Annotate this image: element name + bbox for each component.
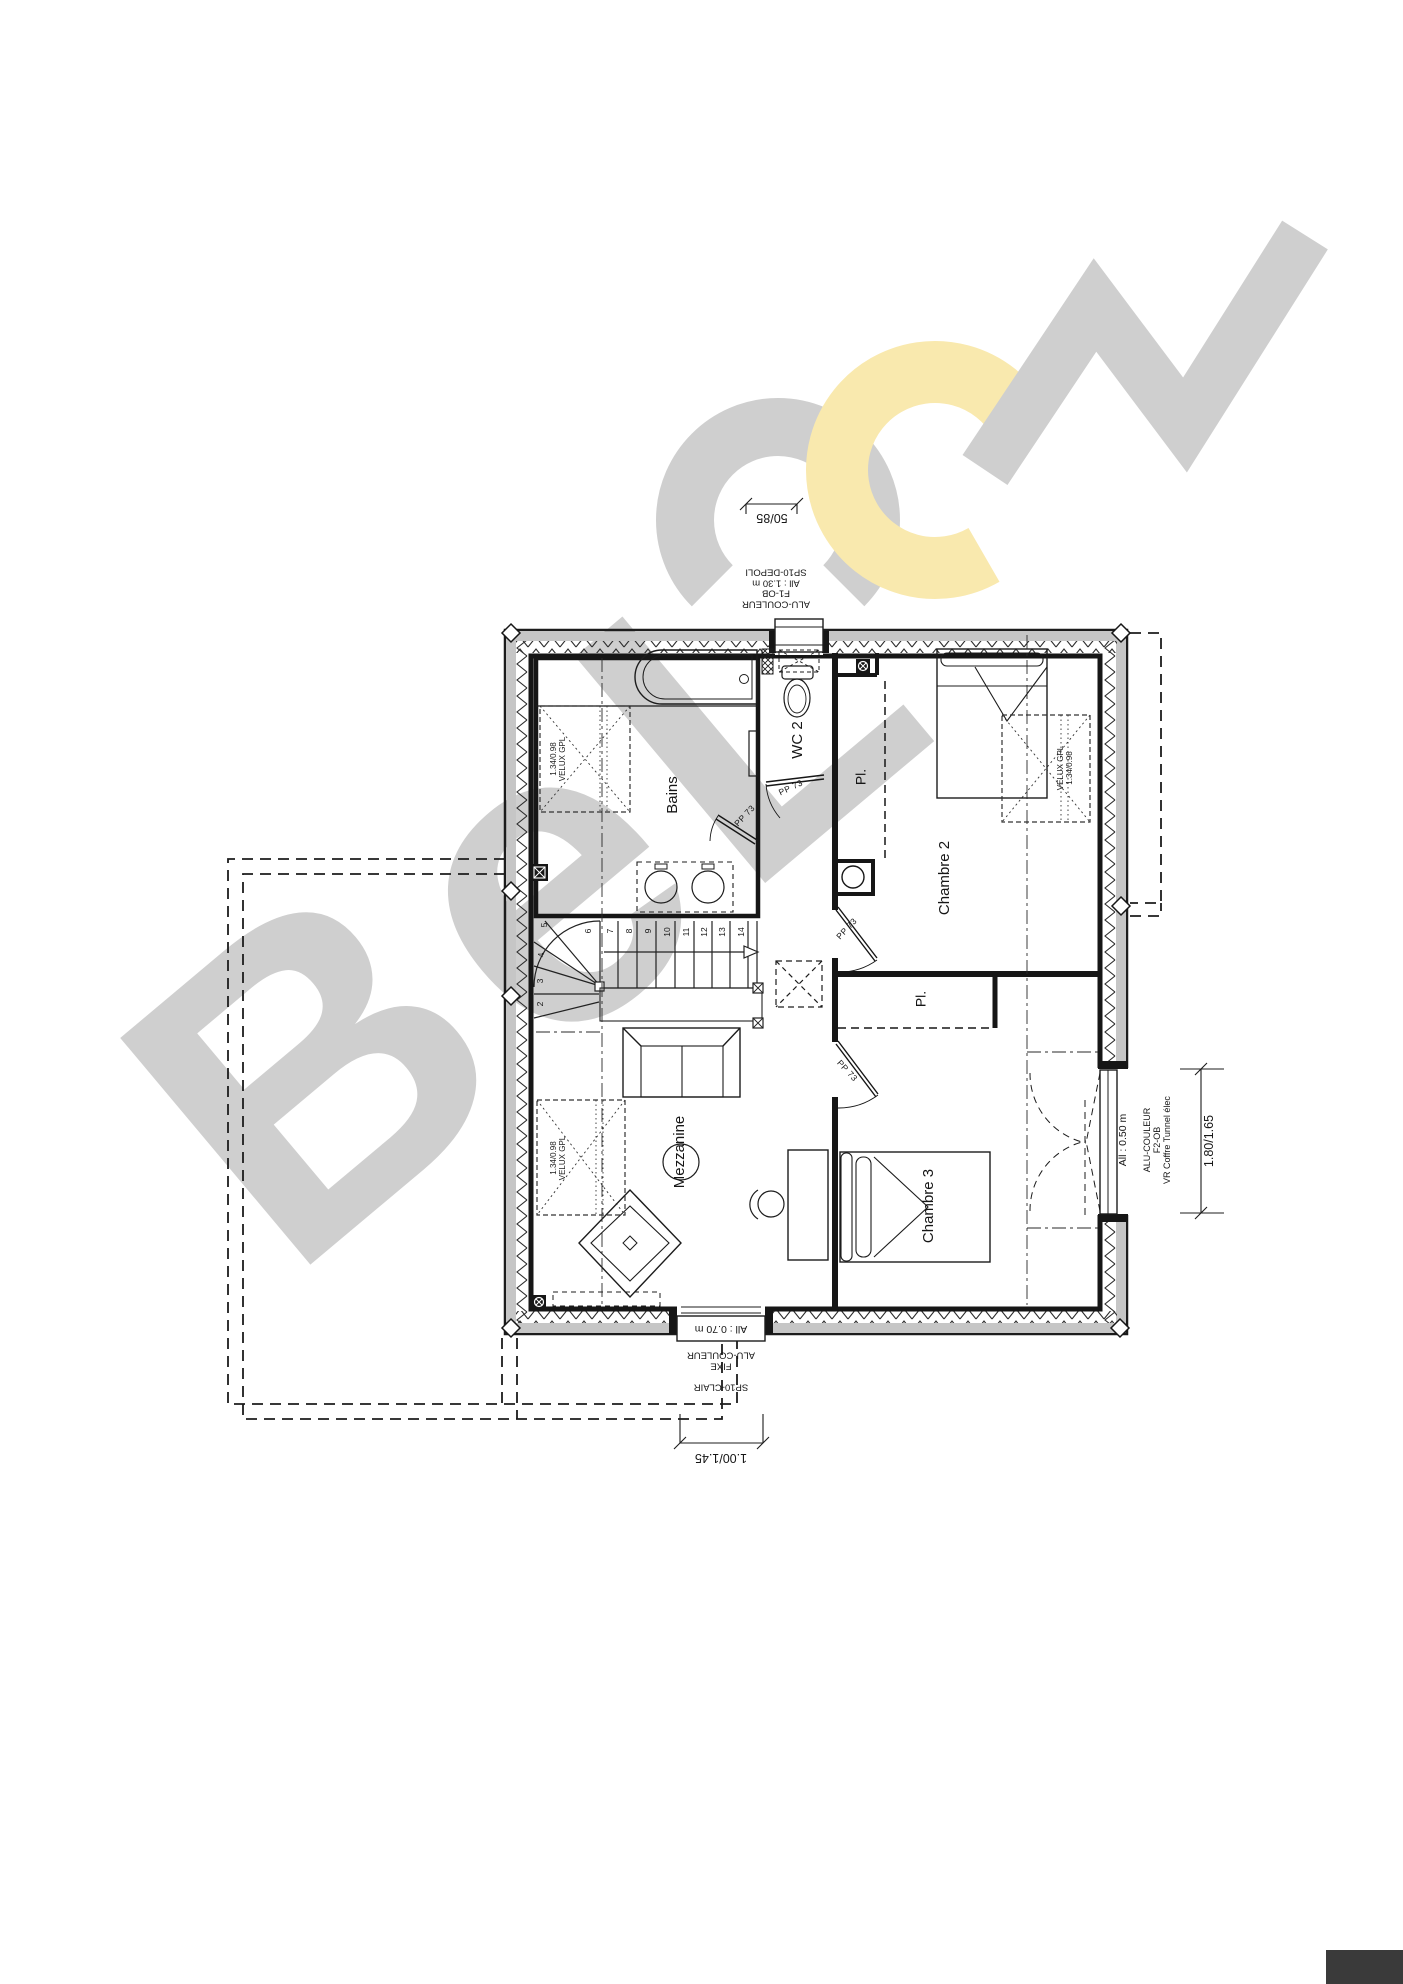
velux-size: 1.34/0.98 (549, 1136, 558, 1180)
annotation-line: ALU-COULEUR (742, 598, 810, 609)
annotation-line: F2-OB (1152, 1096, 1162, 1184)
stair-number: 7 (605, 929, 615, 934)
staircase (534, 921, 763, 1028)
sill-label-bottom-window: All : 0.70 m (695, 1322, 748, 1334)
page-corner-block (1326, 1950, 1403, 1984)
annotation-bottom-window: FIXE ALU-COULEUR (687, 1349, 755, 1370)
annotation-line: FIXE (687, 1360, 755, 1371)
mezzanine-furniture (553, 1028, 828, 1306)
window-top-f1ob (769, 619, 829, 672)
velux-name: VELUX GPL (558, 1136, 567, 1180)
floor-plan-page: BeL (0, 0, 1403, 1984)
stair-number: 8 (624, 929, 634, 934)
velux-label-bains: 1.34/0.98 VELUX GPL (549, 737, 567, 781)
height-label-right-window: All : 0.50 m (1118, 1114, 1130, 1167)
stair-number: 12 (699, 927, 709, 936)
electrical-symbols (531, 659, 870, 1309)
stair-number: 4 (536, 953, 546, 958)
room-label-bains: Bains (665, 776, 682, 814)
velux-name: VELUX GPL (1056, 746, 1065, 790)
dimension-right-window: 1.80/1.65 (1203, 1115, 1217, 1167)
stair-number: 10 (662, 927, 672, 936)
annotation-line: ALU-COULEUR (687, 1349, 755, 1360)
annotation-top-window: ALU-COULEUR F1-OB All : 1.30 m SP10-DEPO… (742, 566, 810, 609)
room-label-placard-mid: Pl. (913, 991, 928, 1007)
annotation-line: All : 1.30 m (742, 576, 810, 587)
stair-number: 3 (535, 979, 545, 984)
chambre2-bed (937, 649, 1047, 798)
velux-label-chambre2: VELUX GPL 1.34/0.98 (1056, 746, 1074, 790)
velux-name: VELUX GPL (558, 737, 567, 781)
annotation-line: ALU-COULEUR (1142, 1096, 1152, 1184)
window-right-swing-dashed (1030, 1073, 1100, 1215)
chambre3-bed (840, 1152, 990, 1262)
stair-number: 13 (717, 927, 727, 936)
velux-size: 1.34/0.98 (1065, 746, 1074, 790)
annotation-line: F1-OB (742, 587, 810, 598)
stair-number: 2 (535, 1002, 545, 1007)
room-label-chambre2: Chambre 2 (937, 841, 954, 915)
wall-diamond-markers (502, 624, 1130, 1337)
axis-lines (536, 635, 1100, 1305)
room-label-placard-top: Pl. (853, 769, 868, 785)
dimension-bottom-window: 1.00/1.45 (695, 1450, 747, 1464)
roof-overhang-dashed-outline (228, 633, 1161, 1419)
room-label-wc2: WC 2 (790, 721, 807, 759)
velux-label-mezzanine: 1.34/0.98 VELUX GPL (549, 1136, 567, 1180)
room-label-mezzanine: Mezzanine (672, 1116, 689, 1189)
interior-partitions (536, 653, 1100, 1309)
stair-number: 5 (539, 923, 549, 928)
annotation-right-window: ALU-COULEUR F2-OB VR Coffre Tunnel élec (1142, 1096, 1172, 1184)
annotation-bottom-window-glazing: SP10-CLAIR (694, 1381, 748, 1392)
stair-number: 6 (583, 929, 593, 934)
annotation-line: VR Coffre Tunnel élec (1162, 1096, 1172, 1184)
stair-number: 9 (643, 929, 653, 934)
stair-number: 11 (681, 928, 691, 937)
chimney-duct (776, 961, 822, 1007)
velux-size: 1.34/0.98 (549, 737, 558, 781)
annotation-line: SP10-DEPOLI (742, 566, 810, 577)
velux-symbols (537, 706, 1090, 1215)
stair-number: 14 (736, 927, 746, 936)
dimension-top-window: 50/85 (756, 510, 787, 524)
floor-plan-drawing (0, 0, 1403, 1984)
room-label-chambre3: Chambre 3 (921, 1169, 938, 1243)
